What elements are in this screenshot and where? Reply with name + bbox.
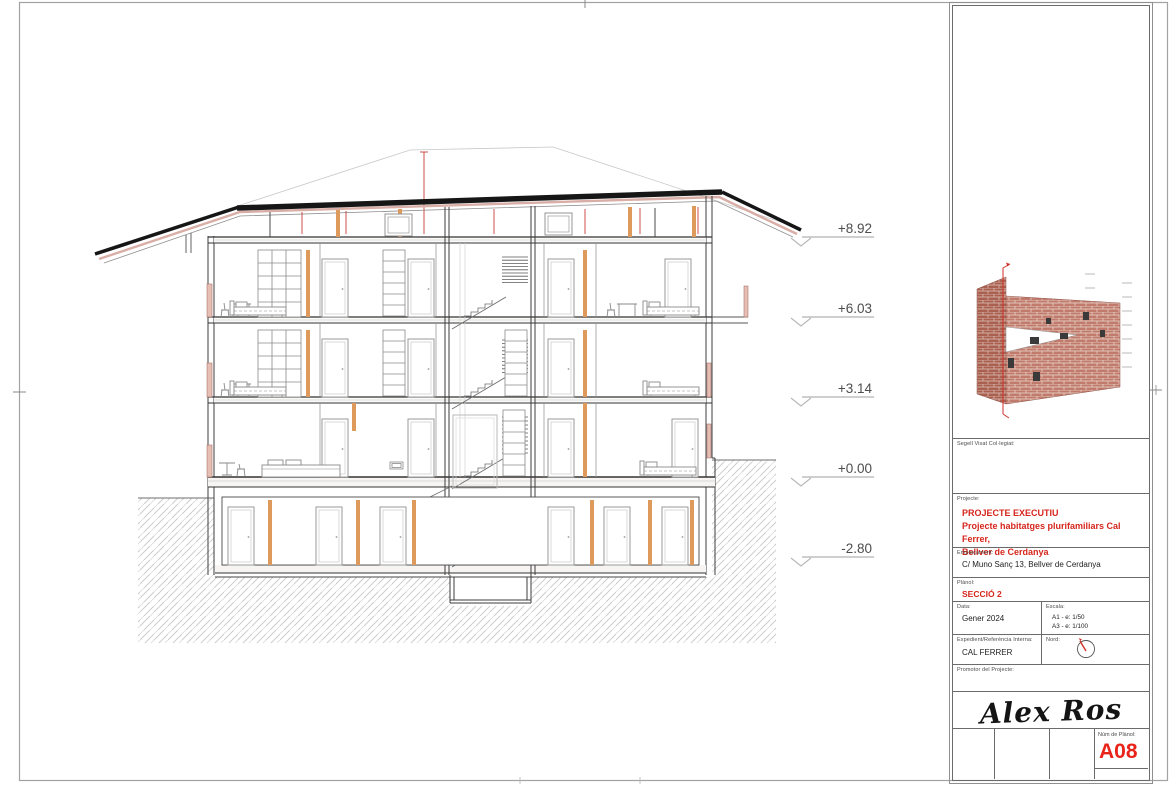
- svg-text:-2.80: -2.80: [841, 541, 872, 556]
- site-address: C/ Muno Sanç 13, Bellver de Cerdanya: [962, 560, 1101, 569]
- reference-value: CAL FERRER: [962, 648, 1012, 657]
- slab-attic: [208, 237, 712, 243]
- svg-text:+8.92: +8.92: [838, 221, 872, 236]
- elevation-marker: +6.03: [791, 301, 874, 326]
- stair-pit-body: [450, 575, 531, 605]
- slab-ground: [208, 477, 715, 487]
- project-box: Projecte: PROJECTE EXECUTIU Projecte hab…: [953, 493, 1149, 547]
- stamp-box: Segell Visat Col·legiat:: [953, 438, 1149, 493]
- north-label: Nord:: [1046, 637, 1060, 643]
- sheet-name-value: SECCIÓ 2: [962, 589, 1002, 599]
- scale-values: A1 - e: 1/50 A3 - e: 1/100: [1052, 613, 1088, 631]
- promoter-label: Promotor del Projecte:: [957, 667, 1014, 673]
- bottom-grid: Núm de Plànol: A08: [953, 728, 1149, 779]
- signature-box: Alex Ros: [953, 691, 1149, 728]
- promoter-box: Promotor del Projecte:: [953, 664, 1149, 691]
- project-label: Projecte:: [957, 496, 980, 502]
- elevation-marker: +0.00: [791, 461, 874, 486]
- date-label: Data:: [957, 604, 971, 610]
- sheet-name-box: Plànol: SECCIÓ 2: [953, 577, 1149, 601]
- stamp-label: Segell Visat Col·legiat:: [957, 441, 1015, 447]
- svg-text:+6.03: +6.03: [838, 301, 872, 316]
- elevation-markers: +8.92 +6.03 +3.14 +0.00 -2.80: [791, 221, 874, 566]
- reference-label: Expedient/Referència Interna:: [957, 637, 1033, 643]
- title-block: Segell Visat Col·legiat: Projecte: PROJE…: [952, 5, 1150, 781]
- site-label: Emplaçament:: [957, 550, 993, 556]
- svg-text:+0.00: +0.00: [838, 461, 872, 476]
- elevation-marker: +8.92: [791, 221, 874, 246]
- architect-signature: Alex Ros: [952, 692, 1149, 732]
- scale-label: Escala:: [1046, 604, 1065, 610]
- basement: [222, 497, 699, 565]
- elevation-marker: +3.14: [791, 381, 874, 406]
- date-scale-row: Data: Gener 2024 Escala: A1 - e: 1/50 A3…: [953, 601, 1149, 634]
- slab-floor3: [208, 317, 748, 323]
- svg-text:+3.14: +3.14: [838, 381, 873, 396]
- sheet-name-label: Plànol:: [957, 580, 975, 586]
- elevation-marker: -2.80: [791, 541, 874, 566]
- sheet-number-label: Núm de Plànol:: [1098, 732, 1136, 738]
- reference-north-row: Expedient/Referència Interna: CAL FERRER…: [953, 634, 1149, 664]
- drawing-sheet: +8.92 +6.03 +3.14 +0.00 -2.80: [0, 0, 1170, 785]
- site-box: Emplaçament: C/ Muno Sanç 13, Bellver de…: [953, 547, 1149, 577]
- sheet-number-value: A08: [1099, 740, 1138, 764]
- sheet-number-cell: Núm de Plànol: A08: [1094, 729, 1148, 780]
- date-value: Gener 2024: [962, 614, 1004, 623]
